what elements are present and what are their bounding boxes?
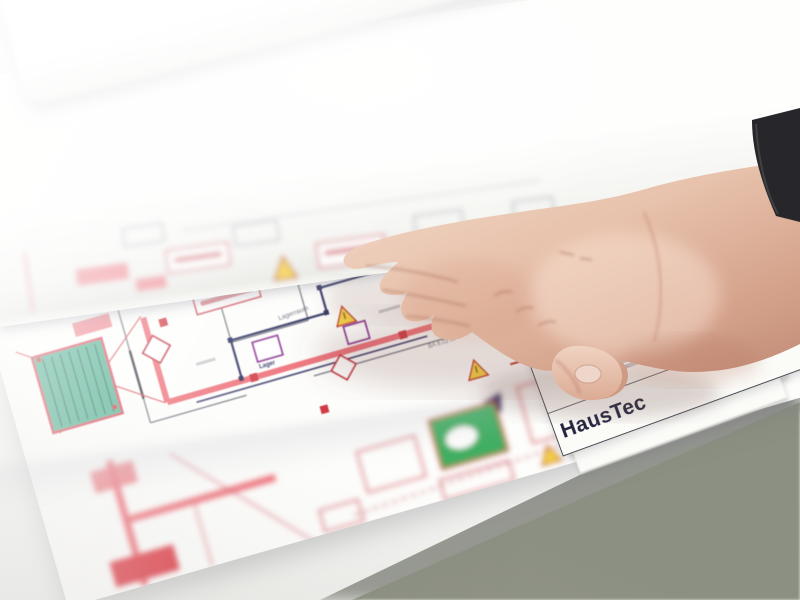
hand [0, 0, 800, 600]
thumbnail [575, 365, 601, 383]
photo-hand-on-floor-plan: Lagerraum Lager BA 8.03 m [0, 0, 800, 600]
